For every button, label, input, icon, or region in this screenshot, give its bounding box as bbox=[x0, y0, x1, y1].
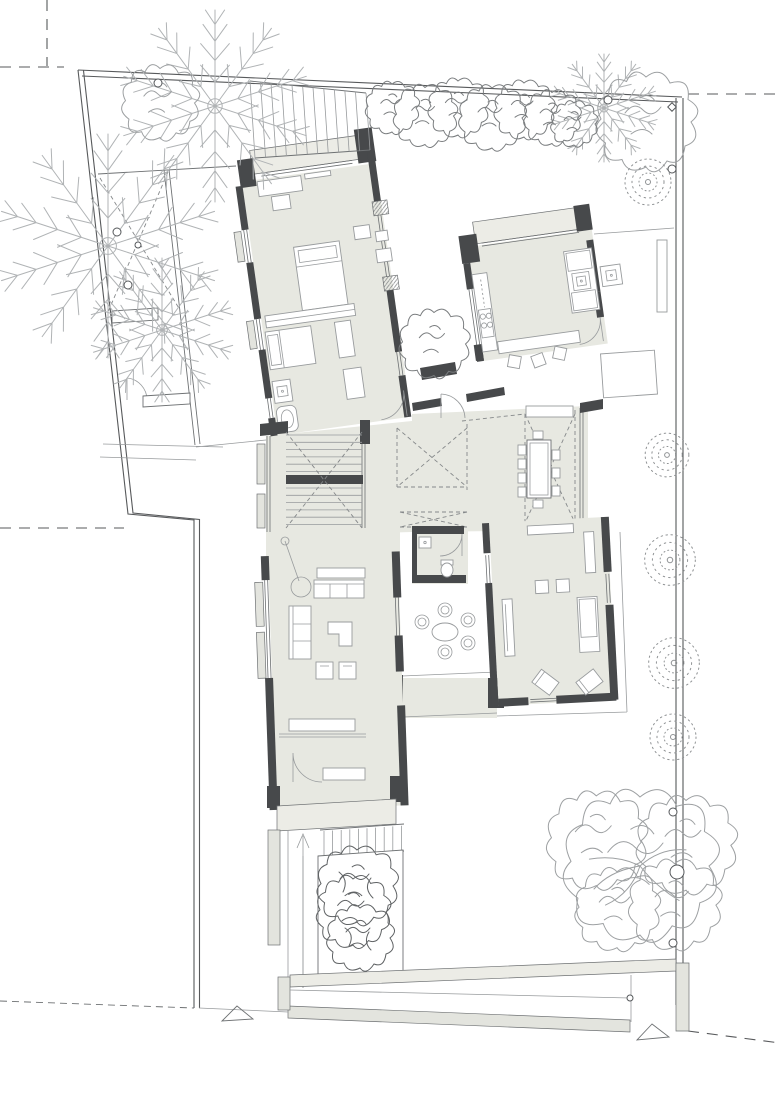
chair-icon bbox=[556, 579, 570, 593]
stool-icon bbox=[553, 346, 567, 360]
east-terrace bbox=[594, 228, 674, 398]
survey-marker-circle bbox=[604, 96, 612, 104]
outdoor-grill-icon bbox=[600, 264, 623, 287]
console-icon bbox=[527, 524, 573, 535]
kitchen-wing bbox=[456, 201, 632, 376]
dining-table-icon bbox=[527, 440, 551, 498]
entry-sequence bbox=[267, 776, 404, 990]
survey-marker-circle bbox=[670, 865, 684, 879]
stool-icon bbox=[271, 194, 291, 210]
side-table-icon bbox=[353, 225, 371, 240]
chair-icon bbox=[376, 248, 393, 263]
street-line bbox=[0, 1001, 194, 1008]
stipple-tree-icon bbox=[650, 714, 696, 760]
bed-icon bbox=[265, 326, 316, 370]
bench-icon bbox=[323, 768, 365, 780]
survey-marker-circle bbox=[113, 228, 121, 236]
annex-partition bbox=[143, 393, 190, 407]
garden-wall-stub bbox=[278, 977, 290, 1010]
survey-marker-circle bbox=[668, 165, 676, 173]
dining-hall-floor bbox=[412, 406, 588, 532]
media-cabinet-icon bbox=[289, 719, 355, 731]
survey-marker-circle bbox=[669, 939, 677, 947]
hedge-shrub-icon bbox=[393, 84, 458, 147]
carport-void-x bbox=[100, 172, 180, 312]
chair-icon bbox=[375, 230, 388, 242]
wall-segment bbox=[412, 398, 442, 411]
chair-icon bbox=[535, 580, 549, 594]
entry-marker-triangle bbox=[637, 1024, 669, 1040]
dresser-icon bbox=[343, 367, 365, 399]
wall-segment bbox=[580, 399, 603, 413]
stair-direction-arrow bbox=[297, 834, 309, 988]
toilet-icon bbox=[441, 560, 453, 577]
walkway-floor bbox=[402, 678, 497, 718]
terrace-edge-line bbox=[594, 228, 674, 234]
wall-segment bbox=[466, 387, 505, 402]
bedroom-wing bbox=[222, 127, 417, 438]
wall-segment bbox=[261, 556, 270, 580]
garden-wall-south bbox=[288, 1006, 630, 1032]
window-sill bbox=[246, 321, 257, 350]
boundary-left-outer bbox=[78, 70, 194, 1008]
stipple-tree-icon bbox=[645, 433, 689, 477]
survey-marker-circle bbox=[627, 995, 633, 1001]
wall-segment bbox=[267, 786, 280, 808]
sofa-icon bbox=[289, 606, 311, 659]
bench-icon bbox=[657, 240, 667, 312]
armchair-icon bbox=[316, 662, 333, 679]
window-sill bbox=[255, 582, 265, 626]
washbasin-icon bbox=[272, 379, 293, 403]
survey-marker-circle bbox=[669, 808, 677, 816]
entry-marker-triangle bbox=[222, 1006, 253, 1021]
survey-marker-circle bbox=[154, 79, 162, 87]
shelf-icon bbox=[584, 532, 596, 573]
stair-landing-wall bbox=[286, 475, 363, 484]
armchair-icon bbox=[339, 662, 356, 679]
hall-north-walls bbox=[412, 362, 505, 418]
window-glazing bbox=[486, 555, 490, 583]
window-sill bbox=[256, 632, 266, 678]
boundary-top-inner bbox=[82, 76, 678, 102]
masonry-pier bbox=[372, 200, 389, 216]
stipple-tree-icon bbox=[649, 638, 700, 689]
patio-table-icon bbox=[432, 623, 458, 641]
survey-marker-diamond bbox=[668, 103, 676, 111]
garden-wall bbox=[268, 830, 280, 945]
stool-icon bbox=[507, 355, 521, 369]
outdoor-table-icon bbox=[601, 350, 658, 398]
garden-wall-east bbox=[676, 963, 689, 1031]
site-plan-drawing bbox=[0, 0, 780, 1105]
stipple-tree-icon bbox=[645, 535, 696, 586]
wall-segment bbox=[392, 551, 402, 597]
sideboard-icon bbox=[526, 406, 573, 417]
console-icon bbox=[317, 568, 365, 578]
boundary-left-inner bbox=[84, 71, 200, 1009]
wall-segment bbox=[390, 776, 403, 802]
sofa-icon bbox=[314, 580, 364, 598]
bed-icon bbox=[294, 241, 348, 311]
wall-segment bbox=[412, 575, 466, 583]
wall-segment bbox=[498, 697, 528, 707]
wall-segment bbox=[412, 534, 417, 576]
boundary-dashed-bottom-right bbox=[688, 1031, 780, 1043]
stipple-tree-icon bbox=[625, 159, 671, 205]
survey-marker-circle bbox=[124, 281, 132, 289]
window-sill bbox=[234, 232, 245, 263]
masonry-pier bbox=[383, 275, 400, 291]
survey-marker-circle bbox=[135, 242, 141, 248]
entry-planter bbox=[318, 850, 403, 977]
family-wing bbox=[482, 517, 618, 707]
floor-plan-page bbox=[0, 0, 780, 1105]
window-sill bbox=[257, 444, 265, 484]
walk-edges bbox=[288, 830, 303, 990]
bigtree-tree-icon bbox=[546, 789, 737, 951]
washbasin-icon bbox=[419, 537, 431, 548]
wall-segment bbox=[412, 526, 464, 534]
wall-segment bbox=[395, 635, 404, 671]
daybed-icon bbox=[577, 596, 600, 652]
garden-walls bbox=[199, 959, 689, 1040]
window-sill bbox=[257, 494, 265, 528]
stool-icon bbox=[531, 353, 546, 368]
